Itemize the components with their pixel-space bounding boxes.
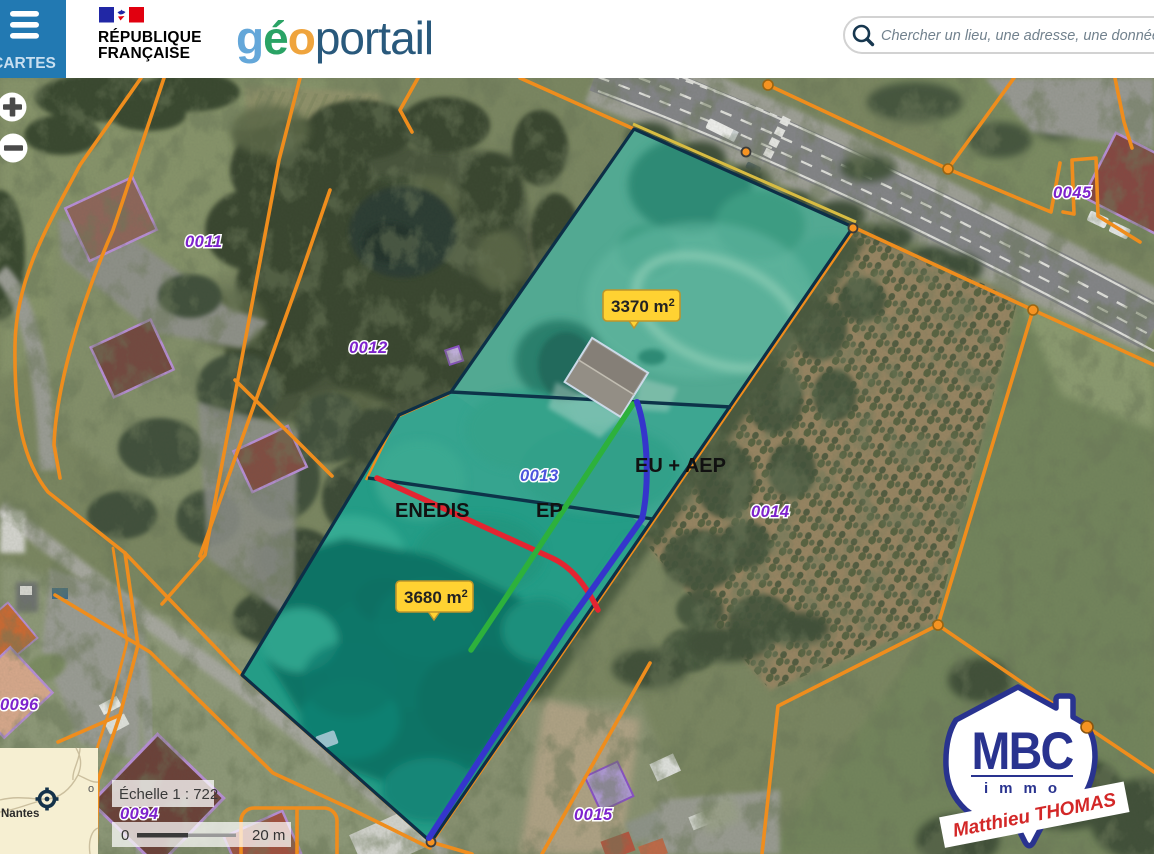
svg-text:EU + AEP: EU + AEP — [635, 455, 726, 477]
svg-text:0014: 0014 — [751, 503, 790, 521]
svg-text:0013: 0013 — [520, 467, 559, 485]
svg-text:o: o — [88, 783, 94, 795]
svg-text:0045: 0045 — [1053, 184, 1092, 202]
svg-text:0015: 0015 — [574, 806, 613, 824]
svg-text:ENEDIS: ENEDIS — [395, 500, 469, 522]
svg-text:Nantes: Nantes — [1, 808, 39, 820]
svg-text:0: 0 — [121, 827, 129, 844]
svg-text:0011: 0011 — [185, 233, 222, 251]
svg-text:immo: immo — [984, 780, 1068, 797]
svg-text:géoportail: géoportail — [236, 12, 433, 64]
svg-text:20 m: 20 m — [252, 827, 285, 844]
svg-text:0012: 0012 — [349, 339, 388, 357]
svg-text:EP: EP — [536, 500, 563, 522]
svg-text:0094: 0094 — [120, 805, 159, 823]
svg-text:CARTES: CARTES — [0, 55, 56, 72]
svg-text:3370 m2: 3370 m2 — [611, 297, 675, 316]
svg-text:0096: 0096 — [0, 696, 39, 714]
svg-text:MBC: MBC — [972, 721, 1074, 780]
svg-text:FRANÇAISE: FRANÇAISE — [98, 45, 190, 62]
svg-text:RÉPUBLIQUE: RÉPUBLIQUE — [98, 29, 202, 46]
svg-text:Échelle 1 : 722: Échelle 1 : 722 — [119, 786, 218, 803]
svg-text:3680 m2: 3680 m2 — [404, 588, 468, 607]
